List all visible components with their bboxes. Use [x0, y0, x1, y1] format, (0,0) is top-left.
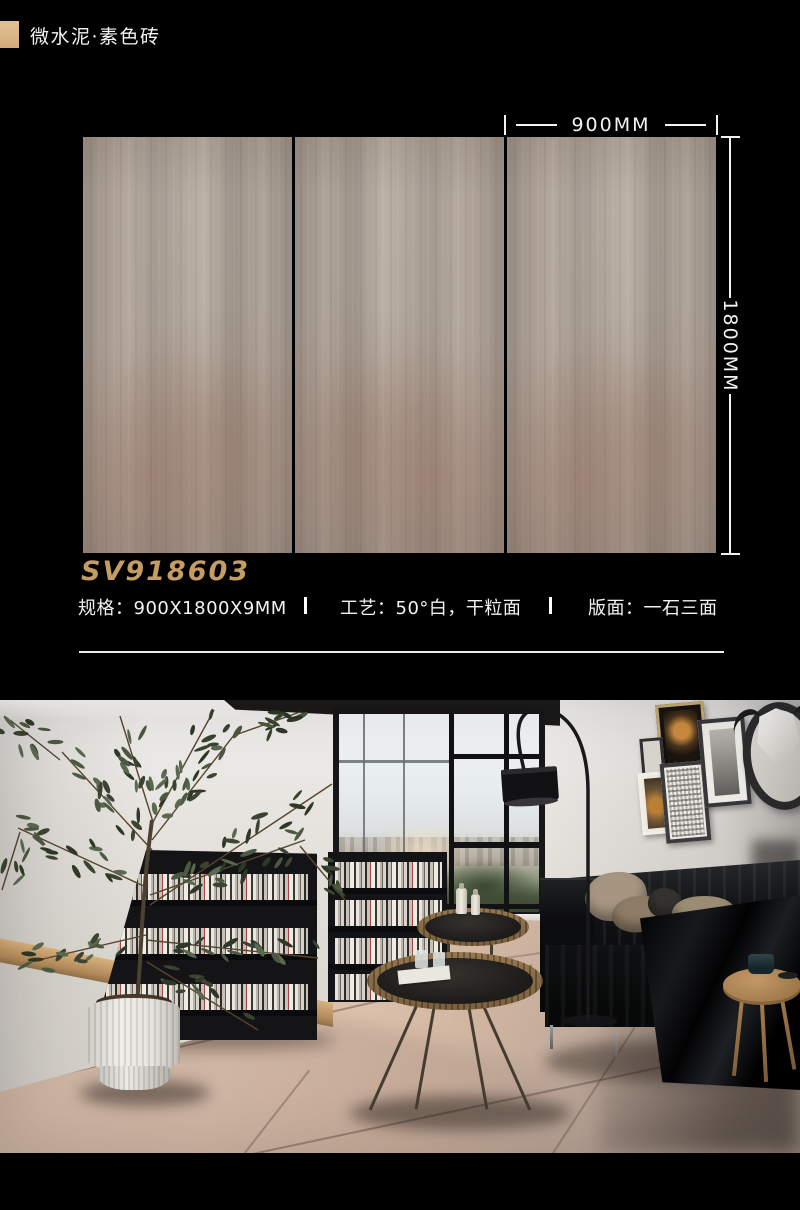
dimension-line	[516, 124, 557, 126]
drinking-glass	[415, 950, 428, 968]
poster-root: { "header": { "title": "微水泥·素色砖", "swatc…	[0, 0, 800, 1210]
footer-strip	[0, 1153, 800, 1210]
decor-bottle	[471, 894, 480, 915]
spec-size: 规格：900X1800X9MM	[78, 594, 287, 620]
tile-showcase	[83, 137, 716, 553]
width-dimension-label: 900MM	[567, 114, 654, 136]
spec-separator	[549, 597, 552, 614]
product-code: SV918603	[81, 556, 250, 587]
spec-separator	[304, 597, 307, 614]
brand-swatch-icon	[0, 21, 19, 48]
planter-base	[98, 1066, 170, 1090]
width-dimension: 900MM	[504, 112, 718, 138]
dimension-line	[729, 138, 731, 298]
planter-pot	[88, 998, 180, 1070]
series-title: 微水泥·素色砖	[30, 22, 161, 49]
olive-tree	[0, 700, 360, 1045]
drinking-glass	[433, 952, 445, 968]
dimension-tick	[504, 115, 506, 135]
dimension-line	[665, 124, 706, 126]
room-photo	[0, 700, 800, 1153]
nesting-table-top	[425, 912, 521, 942]
dimension-line	[729, 394, 731, 553]
height-dimension-label: 1800MM	[719, 299, 741, 392]
tile-panel	[507, 137, 716, 553]
spec-faces: 版面：一石三面	[588, 594, 718, 620]
tile-panel	[295, 137, 504, 553]
spec-craft: 工艺：50°白，干粒面	[340, 594, 521, 620]
dimension-tick	[716, 115, 718, 135]
decor-bottle	[456, 888, 467, 914]
section-divider	[79, 651, 724, 653]
tile-panel	[83, 137, 292, 553]
dimension-tick	[721, 553, 740, 555]
